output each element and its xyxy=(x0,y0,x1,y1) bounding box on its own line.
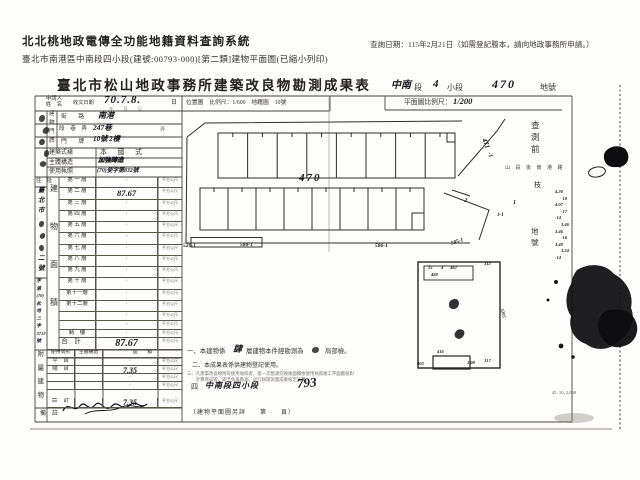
attach-area-value: · xyxy=(103,358,158,365)
unit-label: 平方公尺 xyxy=(158,200,182,210)
title-lot-line: 段 xyxy=(414,84,422,92)
floor-row: 第 六 層·平方公尺 xyxy=(59,233,182,244)
plan-lot-label: 1-1 xyxy=(497,213,504,218)
note-2: 二、本成果表係供建物登記使用。 xyxy=(192,363,282,369)
floor-label: 第 六 層 xyxy=(59,233,96,243)
door-plate-col: 建 xyxy=(49,112,55,118)
unit-label: 平方公尺 xyxy=(158,256,182,266)
floor-area-value: · xyxy=(96,200,158,210)
floor-row: 第 一 層·平方公尺 xyxy=(59,177,182,188)
unit-label: 平方公尺 xyxy=(158,398,182,407)
floor-row: 第 二 層87.67平方公尺 xyxy=(59,188,182,199)
floor-label xyxy=(59,312,96,320)
plan-lot-label: 15 xyxy=(428,266,433,271)
receipt-date-handwritten: 70.7.8. xyxy=(104,95,141,107)
plate-value: 10號 2樓 xyxy=(93,136,120,144)
floor-area-value: · xyxy=(96,312,158,320)
note-1-pre: 一、本建物係 xyxy=(187,349,225,356)
floor-label xyxy=(59,321,96,329)
license-label: 使用執照 xyxy=(49,169,73,175)
floor-area-value: · xyxy=(96,267,158,277)
unit-label: 平方公尺 xyxy=(158,278,182,288)
footer-page-line: （建物平面圖另詳 第 頁） xyxy=(190,410,295,416)
attach-area-value: · xyxy=(103,374,158,381)
file-number-vertical: 地 xyxy=(37,309,42,314)
note-1-post: 局部檢。 xyxy=(325,349,351,356)
attach-use xyxy=(47,382,75,389)
lane-suffix: 弄 xyxy=(160,128,165,133)
unit-label: 平方公尺 xyxy=(158,188,182,198)
plan-lot-label: 520-1 xyxy=(183,244,196,250)
floor-area-value: · xyxy=(96,177,158,187)
form-title: 臺北市松山地政事務所建築改良物勘測成果表 xyxy=(57,79,371,93)
print-run-code: 45. 10. 2,000 xyxy=(552,391,576,396)
unit-label: 平方公尺 xyxy=(158,301,182,311)
plan-scale-value: 1/200 xyxy=(453,97,472,106)
address-handwritten: 號 xyxy=(38,266,45,273)
plan-lot-label: 317 xyxy=(484,359,491,364)
street-value: 南港 xyxy=(98,112,114,120)
applicant-name-label: 申請人 姓 名 xyxy=(37,97,71,108)
street-label: 街 路 xyxy=(61,114,84,120)
floor-label: 第 四 層 xyxy=(59,211,96,221)
before-survey-col: 測 xyxy=(531,133,540,142)
unit-label: 平方公尺 xyxy=(158,374,182,381)
unit-label: 平方公尺 xyxy=(158,267,182,277)
floor-label: 第 三 層 xyxy=(59,200,96,210)
note-4-handwritten-number: 793 xyxy=(296,375,317,390)
floor-row: 第 九 層·平方公尺 xyxy=(59,267,182,278)
attachment-col: 附 xyxy=(38,352,45,359)
floor-label: 第十二層 xyxy=(59,301,96,311)
margin-lot-no: 號 xyxy=(531,239,539,247)
file-number-vertical: 3712 xyxy=(37,332,46,337)
floors-total-row: 合 計87.67平方公尺 xyxy=(47,338,182,350)
plan-lot-label: 1.08 xyxy=(467,361,475,366)
margin-measure-number: 3.48 xyxy=(555,243,563,248)
address-handwritten: 二 xyxy=(38,256,45,263)
note-4-pre: 四 xyxy=(191,384,198,391)
attachment-col: 物 xyxy=(38,393,45,400)
plan-lot-label: 1205 xyxy=(499,308,505,318)
unit-label: 平方公尺 xyxy=(158,177,182,187)
floor-label: 第 二 層 xyxy=(59,188,96,198)
floor-area-value: · xyxy=(96,256,158,266)
plan-lot-label: 588-1 xyxy=(240,243,253,249)
floor-row: 第 八 層·平方公尺 xyxy=(59,256,182,267)
attach-row: 陽 台7.35平方公尺 xyxy=(47,366,182,374)
title-lot-line: 470 xyxy=(492,78,516,91)
receipt-date-units: 年 月 日 xyxy=(109,107,145,111)
floor-row: 第十二層·平方公尺 xyxy=(59,301,182,312)
margin-measure-number: 4.20 xyxy=(555,190,563,195)
floor-area-value: · xyxy=(96,321,158,329)
attach-area-value: · xyxy=(103,382,158,389)
address-handwritten: 臺 xyxy=(38,188,45,195)
attachment-col: 屬 xyxy=(38,366,45,373)
plate-label: 門 牌 xyxy=(61,139,84,145)
floor-row: 第十一層·平方公尺 xyxy=(59,290,182,301)
margin-measure-number: -17 xyxy=(561,210,567,215)
query-date: 查詢日期：115年2月21日（如需登記謄本，請向地政事務所申請。） xyxy=(370,41,594,49)
floor-label: 第 五 層 xyxy=(59,222,96,232)
scanned-survey-document: 北北桃地政電傳全功能地籍資料查詢系統 查詢日期：115年2月21日（如需登記謄本… xyxy=(0,0,640,480)
address-handwritten: 市 xyxy=(38,208,45,215)
attach-structure xyxy=(75,398,103,407)
attach-use: 合 計 xyxy=(47,398,75,407)
margin-measure-number: -16 xyxy=(561,236,567,241)
plan-lot-label: 488 xyxy=(431,273,438,278)
floor-row: 第 三 層·平方公尺 xyxy=(59,200,182,211)
door-plate-col: 門 xyxy=(49,130,55,136)
address-handwritten: 北 xyxy=(38,198,45,205)
attach-header-area: 面 積 xyxy=(103,350,182,357)
building-area-col: 面 xyxy=(50,261,58,269)
plan-lot-label: 482 xyxy=(450,266,457,271)
title-lot-line: 小段 xyxy=(447,84,463,92)
floor-label: 第十一層 xyxy=(59,290,96,300)
floor-row: 第 四 層·平方公尺 xyxy=(59,211,182,222)
margin-measure-number: 3.24 xyxy=(561,249,569,254)
plan-lot-label: 403 xyxy=(417,362,424,367)
title-lot-line: 地號 xyxy=(540,84,556,92)
attach-row: ·平方公尺 xyxy=(47,382,182,390)
floor-area-value: · xyxy=(96,301,158,311)
margin-small-row: 山段後南港路 xyxy=(505,166,568,171)
attach-header-row: 使用情形主體構造面 積 xyxy=(47,350,182,358)
attach-header-use: 使用情形 xyxy=(47,350,75,357)
note-4-handwritten-section: 中南段四小段 xyxy=(205,382,259,390)
unit-label: 平方公尺 xyxy=(158,321,182,329)
plan-lot-label: 586-1 xyxy=(375,244,388,250)
file-number-vertical: 松 xyxy=(37,302,42,307)
attach-structure xyxy=(75,374,103,381)
lane-value: 247巷 xyxy=(93,124,112,132)
attachment-col: 建 xyxy=(38,379,45,386)
floor-area-value: · xyxy=(96,245,158,255)
attach-header-structure: 主體構造 xyxy=(75,350,103,357)
floor-label: 騎 樓 xyxy=(59,330,96,337)
receipt-day-suffix: 日 xyxy=(171,100,177,106)
note-1-mid: 層建物本件經勘測為 xyxy=(246,349,304,356)
unit-label: 平方公尺 xyxy=(158,382,182,389)
floor-label: 第 一 層 xyxy=(59,177,96,187)
plan-lot-label: 312 xyxy=(484,262,491,267)
plan-lot-label: 1 xyxy=(513,200,516,206)
attach-use: 平 台 xyxy=(47,358,75,365)
remarks-label: 備 註 xyxy=(40,411,58,417)
attach-area-value: 7.35 xyxy=(103,398,158,407)
attach-structure xyxy=(75,382,103,389)
floor-area-value: · xyxy=(96,278,158,288)
floor-label: 第 九 層 xyxy=(59,267,96,277)
building-style-label: 建築式樣 xyxy=(49,150,73,156)
floor-row: 第 五 層·平方公尺 xyxy=(59,222,182,233)
attach-structure xyxy=(75,366,103,373)
file-number-vertical: 第 xyxy=(37,287,42,292)
file-number-vertical: 字 xyxy=(37,279,42,284)
unit-label: 平方公尺 xyxy=(158,312,182,320)
margin-single-char: 枝 xyxy=(534,182,541,189)
door-plate-col: 物 xyxy=(49,121,55,127)
system-title: 北北桃地政電傳全功能地籍資料查詢系統 xyxy=(22,36,251,48)
structure-label: 主體構造 xyxy=(49,160,73,166)
title-lot-line: 4 xyxy=(433,79,439,91)
attach-structure xyxy=(75,358,103,365)
margin-measure-number: -14 xyxy=(555,216,561,221)
floor-area-value: · xyxy=(96,233,158,243)
margin-measure-number: -14 xyxy=(555,256,561,261)
file-number-vertical: 字 xyxy=(37,324,42,329)
margin-measure-number: 3.46 xyxy=(561,223,569,228)
floor-area-value: · xyxy=(96,290,158,300)
plan-scale-label: 平面圖比例尺： xyxy=(404,99,452,106)
floor-row: 第 七 層·平方公尺 xyxy=(59,245,182,256)
doc-subtitle: 臺北市南港區中南段四小段(建號:00793-000)[第二類]建物平面圖(已縮小… xyxy=(22,55,328,64)
unit-label: 平方公尺 xyxy=(158,338,182,349)
building-area-col: 積 xyxy=(50,299,58,307)
license-value: (70)使字第832號 xyxy=(97,168,139,174)
unit-label: 平方公尺 xyxy=(158,290,182,300)
unit-label: 平方公尺 xyxy=(158,222,182,232)
floor-area-value: 87.67 xyxy=(96,188,158,198)
unit-label: 平方公尺 xyxy=(158,233,182,243)
plan-lot-label: 470 xyxy=(299,173,322,185)
plan-lot-label: 4 xyxy=(441,266,443,271)
attach-row: 平 台·平方公尺 xyxy=(47,358,182,366)
receipt-date-label: 收文日期 xyxy=(73,101,94,106)
attach-row: 合 計7.35平方公尺 xyxy=(47,398,182,408)
unit-label: 平方公尺 xyxy=(158,211,182,221)
floor-label: 第 七 層 xyxy=(59,245,96,255)
floor-area-value: · xyxy=(96,330,158,337)
file-number-vertical: (70) xyxy=(37,294,45,299)
before-survey-col: 前 xyxy=(531,145,540,154)
margin-measure-number: 3.46 xyxy=(555,230,563,235)
title-lot-line: 中南 xyxy=(391,81,411,92)
unit-label: 平方公尺 xyxy=(158,358,182,365)
building-area-col: 物 xyxy=(50,223,58,231)
before-survey-col: 查 xyxy=(531,121,540,130)
floor-row: ·平方公尺 xyxy=(59,312,182,321)
floor-row: 騎 樓·平方公尺 xyxy=(59,330,182,338)
floor-label: 第 十 層 xyxy=(59,278,96,288)
attach-row: ·平方公尺 xyxy=(47,374,182,382)
margin-lot-no: 地 xyxy=(531,228,539,236)
attach-area-value: 7.35 xyxy=(103,366,158,373)
door-plate-col: 牌 xyxy=(49,139,55,145)
total-area-value: 87.67 xyxy=(96,338,158,349)
unit-label: 平方公尺 xyxy=(158,366,182,373)
floor-area-value: · xyxy=(96,211,158,221)
unit-label: 平方公尺 xyxy=(158,330,182,337)
ink-stamps xyxy=(547,146,638,423)
attach-use xyxy=(47,374,75,381)
floor-row: 第 十 層·平方公尺 xyxy=(59,278,182,289)
floor-area-value: · xyxy=(96,222,158,232)
plan-lot-label: 416 xyxy=(437,350,444,355)
margin-measure-number: 4.07 xyxy=(555,203,563,208)
margin-measure-number: -18 xyxy=(561,197,567,202)
building-style-value: 本 國 式 xyxy=(100,149,144,156)
building-area-col: 建 xyxy=(50,185,58,193)
structure-value: 加強磚造 xyxy=(98,158,124,165)
total-label: 合 計 xyxy=(47,338,96,349)
file-number-vertical: 號 xyxy=(37,339,42,344)
location-map-scale: 位置圖 比例尺：1/600 地籍圖 10號 xyxy=(186,100,286,106)
file-number-vertical: 二 xyxy=(37,317,42,322)
attach-use: 陽 台 xyxy=(47,366,75,373)
unit-label: 平方公尺 xyxy=(158,245,182,255)
lane-label: 段 巷 弄 xyxy=(59,127,87,133)
note-1-handwritten-floors: 肆 xyxy=(233,345,242,354)
floor-label: 第 八 層 xyxy=(59,256,96,266)
floor-row: ·平方公尺 xyxy=(59,321,182,330)
